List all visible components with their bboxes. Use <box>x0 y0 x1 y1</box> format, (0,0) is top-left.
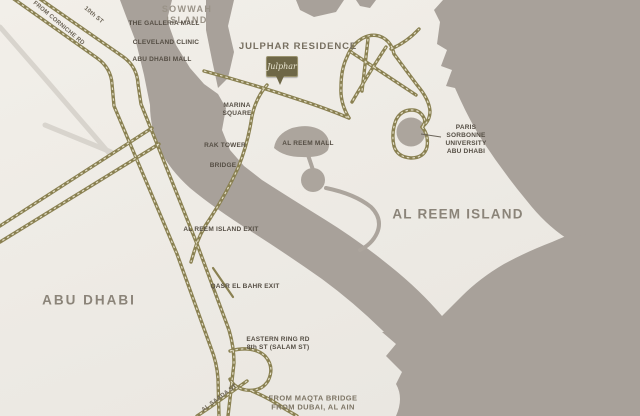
label-sorbonne-university: PARIS SORBONNE UNIVERSITY ABU DHABI <box>440 124 492 157</box>
sorbonne-campus-circle <box>397 118 426 147</box>
label-marina-square: MARINA SQUARE <box>219 102 255 118</box>
location-map: SOWWAH ISLAND ABU DHABI AL REEM ISLAND T… <box>0 0 640 416</box>
road-label-al-reem-island-exit: AL REEM ISLAND EXIT <box>183 226 258 234</box>
region-label-al-reem-island: AL REEM ISLAND <box>392 207 523 224</box>
label-galleria-mall: THE GALLERIA MALL <box>128 20 199 28</box>
label-bridge: BRIDGE <box>210 162 236 170</box>
julphar-residence-pin-tail <box>276 76 284 85</box>
road-label-eastern-ring-rd: EASTERN RING RD 8th ST (SALAM ST) <box>246 336 309 352</box>
road-label-from-maqta-bridge: FROM MAQTA BRIDGE FROM DUBAI, AL AIN <box>269 394 358 413</box>
label-al-reem-mall: AL REEM MALL <box>282 140 333 148</box>
label-julphar-residence: JULPHAR RESIDENCE <box>239 41 357 53</box>
label-abu-dhabi-mall: ABU DHABI MALL <box>132 56 191 64</box>
map-canvas <box>0 0 640 416</box>
road-label-qasr-el-bahr-exit: QASR EL BAHR EXIT <box>210 283 279 291</box>
label-cleveland-clinic: CLEVELAND CLINIC <box>133 39 199 47</box>
region-label-abu-dhabi: ABU DHABI <box>42 293 136 310</box>
label-rak-tower: RAK TOWER <box>204 142 246 150</box>
julphar-residence-pin[interactable]: Julphar <box>266 56 298 77</box>
